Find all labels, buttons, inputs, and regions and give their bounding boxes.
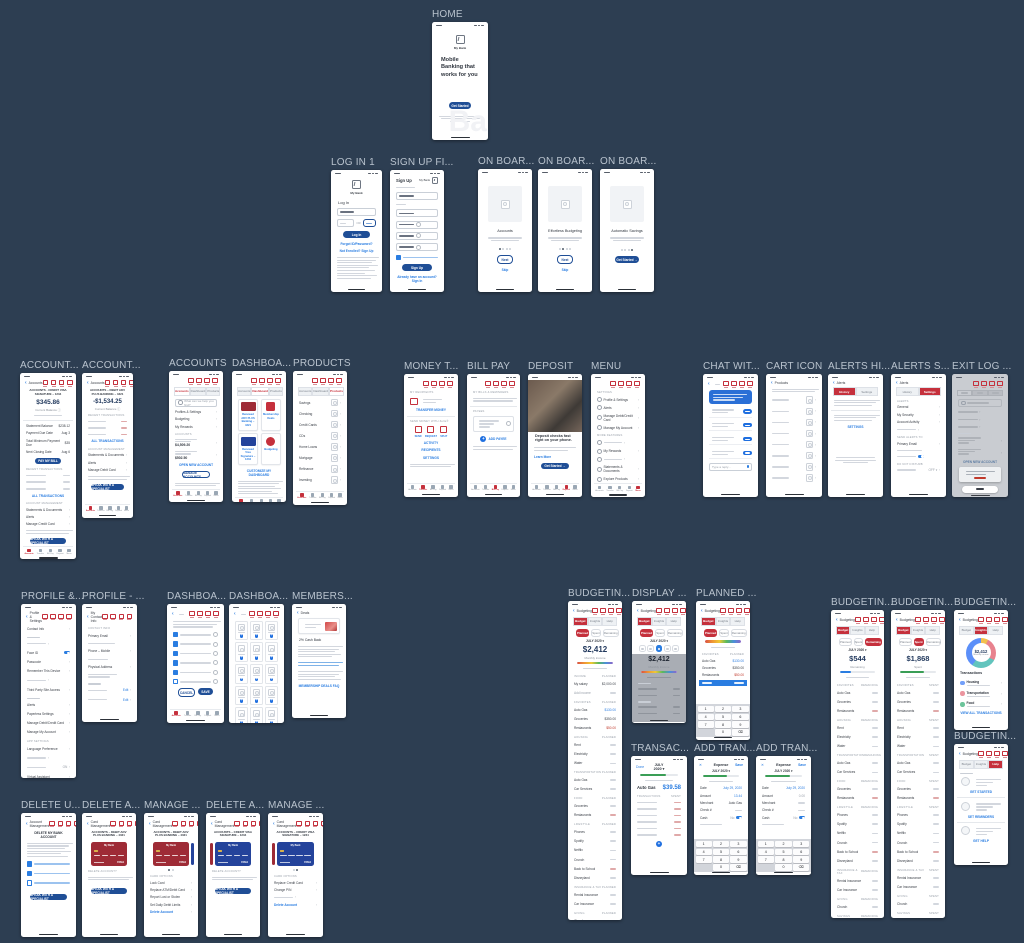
alerts-icon[interactable] [994,751,1000,758]
log-out-icon[interactable] [939,617,945,624]
budget-row[interactable]: Restaurants [574,813,616,817]
frame-budgeting-insights[interactable]: BUDGETIN...‹BudgetingBudgetInsightsHelp$… [954,610,1008,730]
input-field[interactable] [396,243,438,251]
nav-accounts[interactable]: Accounts [236,499,245,502]
alerts-icon[interactable] [204,378,210,385]
pill[interactable]: Remaining [667,629,683,638]
back-nav[interactable]: ‹Budgeting [836,618,855,622]
key-1[interactable]: 1 [698,706,714,713]
frame-label[interactable]: DELETE U... [21,800,80,811]
frame-onboarding-3[interactable]: ON BOAR...Automatic SavingsGet Started → [600,169,654,292]
list-row[interactable]: Alerts› [26,515,70,519]
dot[interactable] [562,248,564,250]
input-field[interactable] [337,219,354,227]
frame-manage-card-debit[interactable]: MANAGE ...‹Card ManagementACCOUNTS – DEB… [144,813,198,937]
tab[interactable]: Accounts [298,387,312,396]
tab[interactable]: Settings [856,387,879,396]
key-backspace[interactable]: ⌫ [732,729,748,736]
link[interactable]: GET STARTED [960,790,1002,794]
back-icon[interactable]: ‹ [959,752,961,756]
nav-menu[interactable]: Menu [449,485,454,491]
frame-label[interactable]: DELETE A... [206,800,264,811]
list-row[interactable]: Manage Credit Card› [26,522,70,526]
cart-icon[interactable] [431,381,437,388]
list-row[interactable]: Remember This Device› [27,669,70,673]
frame-label[interactable]: DELETE A... [82,800,140,811]
list-row[interactable]: › [27,642,70,646]
budget-row[interactable]: Back to School [574,867,616,871]
card-blue-tile[interactable]: Renewed Visa Signature – 1234 [238,433,258,465]
cart-icon[interactable] [50,614,56,621]
list-row[interactable]: General› [897,405,940,409]
list-row[interactable]: Edit› [88,688,131,692]
budget-row[interactable]: Auto Gas [574,778,616,782]
tab[interactable]: Products [269,387,283,396]
cart-icon[interactable] [58,821,64,828]
alerts-icon[interactable] [313,821,319,828]
frame-label[interactable]: ADD TRAN... [756,743,817,754]
list-row[interactable]: Manage Debit Card› [88,468,127,472]
budget-row[interactable]: Netflix [574,848,616,852]
log-out-icon[interactable] [747,381,753,388]
budget-row[interactable]: Restaurants$50.00 [574,726,616,730]
key-6[interactable]: 6 [730,849,746,856]
piggy-tile[interactable]: Budgeting [261,433,282,465]
tab[interactable]: Budget [701,617,716,626]
log-out-icon[interactable] [67,380,73,387]
left-action[interactable]: Done [636,765,651,769]
link[interactable]: SETTINGS [410,456,452,460]
alerts-icon[interactable] [58,614,64,621]
checkbox[interactable] [173,632,178,637]
cart-icon[interactable] [196,378,202,385]
pill[interactable]: Remaining [603,629,619,638]
back-nav[interactable]: ‹Card Management [211,820,234,828]
widget-tile[interactable]: + [250,686,263,706]
cart-icon[interactable] [923,617,929,624]
frame-onboarding-2[interactable]: ON BOAR...Effortless BudgetingNextSkip [538,169,592,292]
add-widget-button[interactable]: + [270,721,274,723]
bank-card[interactable]: My BankVISA [277,842,314,866]
log-out-icon[interactable] [616,608,622,615]
chat-icon[interactable] [43,380,49,387]
log-out-icon[interactable] [321,821,323,828]
frame-budgeting-help[interactable]: BUDGETIN...‹BudgetingBudgetInsightsHelpG… [954,744,1008,865]
back-nav[interactable]: ‹Alerts [896,381,941,385]
add-widget-button[interactable]: + [240,634,244,638]
back-nav[interactable]: ‹Account Management [26,820,49,828]
key-8[interactable]: 8 [775,856,792,863]
log-out-icon[interactable] [879,617,884,624]
frame-products[interactable]: PRODUCTSAccountsDashboardProductsSavings… [293,371,347,505]
alerts-icon[interactable] [501,381,507,388]
log-out-icon[interactable] [127,614,133,621]
product-row[interactable]: Credit Cards› [299,421,341,429]
tab[interactable]: Accounts [237,387,251,396]
frame-label[interactable]: MANAGE ... [268,800,324,811]
request-action[interactable]: REQUEST [425,426,437,437]
key-7[interactable]: 7 [696,856,712,863]
checkbox[interactable] [173,679,178,684]
key-5[interactable]: 5 [713,849,729,856]
tab[interactable]: Insights [652,617,667,626]
list-row[interactable]: Alerts› [88,461,127,465]
nav-transfer[interactable]: Transfer [37,549,44,555]
add-widget-button[interactable]: + [255,699,259,703]
day-pill[interactable] [639,645,646,652]
insight-row[interactable]: Transportation› [960,691,1002,697]
checkbox[interactable] [173,651,178,656]
budget-row[interactable]: Back to School [837,850,878,854]
budget-row[interactable]: Crunch [837,841,878,845]
button[interactable]: Get Started → [541,463,569,470]
list-row[interactable]: Paperless Settings› [27,712,70,716]
frame-alerts-history[interactable]: ALERTS HI...‹AlertsHistorySettingsSETTIN… [828,374,883,497]
button[interactable]: SPEAK WITH A SPECIALIST [215,888,251,895]
frame-chat[interactable]: CHAT WIT...‹Type a reply... [703,374,758,497]
tab[interactable]: Help [865,626,879,635]
budget-row[interactable]: Rental Insurance [897,876,939,880]
budget-row[interactable]: Water [837,744,878,748]
link[interactable]: TRANSFER MONEY [410,408,452,412]
list-row[interactable]: Report Lost or Stolen› [150,895,192,899]
back-icon[interactable]: ‹ [771,381,773,385]
frame-label[interactable]: MENU [591,361,621,372]
checkbox-row[interactable] [173,670,218,675]
product-row[interactable]: › [772,474,816,482]
nav-deposit[interactable]: Deposit [204,491,211,497]
frame-bill-pay[interactable]: BILL PAYMY BILLS & REMINDERSPAYEES+ADD P… [467,374,520,497]
input-field[interactable] [396,232,438,240]
budget-row[interactable]: Car Insurance [574,902,616,906]
back-icon[interactable]: ‹ [708,382,710,386]
frame-sign-up[interactable]: SIGN UP FI...Sign UpMy BankSign UpAlread… [390,170,444,292]
frame-delete-user[interactable]: DELETE U...‹Account ManagementDELETE MY … [21,813,76,937]
nav-accounts[interactable]: Accounts [408,485,416,491]
tab[interactable]: Settings [919,387,942,396]
back-icon[interactable]: ‹ [637,609,639,613]
list-row[interactable]: Lock Card› [150,881,192,885]
tab[interactable]: Help [988,760,1003,769]
back-icon[interactable]: ‹ [959,618,961,622]
back-nav[interactable]: ‹Budgeting [573,609,592,613]
frame-label[interactable]: PROFILE - ... [82,591,145,602]
day-pill[interactable] [664,645,671,652]
product-row[interactable]: CDs› [299,432,341,440]
product-row[interactable]: Refinance› [299,465,341,473]
frame-manage-card-credit[interactable]: MANAGE ...‹Card ManagementACCOUNTS – CRE… [268,813,323,937]
tab[interactable]: Products [206,387,220,396]
back-nav[interactable]: ‹Profile & Settings [26,611,42,623]
product-row[interactable]: › [772,408,816,416]
cart-icon[interactable] [618,381,624,388]
checkbox-row[interactable] [173,641,218,646]
back-icon[interactable]: ‹ [172,612,174,616]
link[interactable]: MEMBERSHIP DEALS FAQ [298,684,340,688]
send-action[interactable]: SEND [415,426,422,437]
alerts-icon[interactable] [251,821,257,828]
add-widget-button[interactable]: + [270,656,274,660]
log-out-icon[interactable] [1002,751,1008,758]
budget-row[interactable]: Groceries [837,787,878,791]
list-row[interactable]: Statements & Documents› [88,453,127,457]
alerts-icon[interactable] [736,608,742,615]
log-out-icon[interactable] [336,378,342,385]
cart-icon[interactable] [110,614,116,621]
back-icon[interactable]: ‹ [573,609,575,613]
design-canvas[interactable]: HOMEBaMy BankMobile Banking that works f… [0,0,1024,943]
nav-bill-pay[interactable]: Bill Pay [258,499,265,502]
bank-card[interactable]: My BankVISA [91,842,127,866]
left-action[interactable]: ✕ [699,763,714,767]
frame-add-transaction-1[interactable]: ADD TRAN...✕ExpenseSaveJULY 2020 ▾DateJu… [694,756,748,875]
frame-label[interactable]: DISPLAY ... [632,588,687,599]
alerts-icon[interactable] [121,380,127,387]
chat-icon[interactable] [855,617,861,624]
list-row[interactable]: Set Daily Debit Limits› [150,903,192,907]
add-widget-button[interactable]: + [270,634,274,638]
link[interactable]: Not Enrolled? Sign Up [337,249,376,253]
cart-icon[interactable] [728,608,734,615]
chat-icon[interactable] [978,751,984,758]
list-row[interactable]: Face ID [27,651,70,655]
dot[interactable] [559,248,561,250]
tab[interactable]: Accounts [174,387,190,396]
tab[interactable]: Insights [974,760,989,769]
tab[interactable]: Help [602,617,617,626]
frame-transactions[interactable]: TRANSAC...DoneJULY 2020 ▾Auto Gas$39.58T… [631,756,687,875]
nav-bill-pay[interactable]: Bill Pay [430,485,437,491]
chat-icon[interactable] [49,821,55,828]
widget-tile[interactable]: + [250,707,263,723]
list-row[interactable]: Manage My Account› [597,425,639,430]
frame-alerts-settings[interactable]: ALERTS S...‹AlertsHistorySettingsALERTSG… [891,374,946,497]
product-row[interactable]: Investing› [299,476,341,484]
budget-row[interactable]: Rent [574,743,616,747]
frame-home[interactable]: HOMEBaMy BankMobile Banking that works f… [432,22,488,140]
budget-row[interactable]: Car Services [897,770,939,774]
key-2[interactable]: 2 [715,706,731,713]
budget-row[interactable]: Church [897,902,939,906]
key-6[interactable]: 6 [793,849,810,856]
dot[interactable] [502,248,504,250]
frame-label[interactable]: BILL PAY [467,361,510,372]
pill[interactable]: Planned [576,629,589,638]
frame-label[interactable]: ALERTS HI... [828,361,890,372]
nav-deposit[interactable]: Deposit [439,485,446,491]
key-9[interactable]: 9 [732,721,748,728]
tab[interactable]: Dashboard [312,387,329,396]
tab[interactable]: History [833,387,856,396]
frame-label[interactable]: HOME [432,9,463,20]
frame-label[interactable]: TRANSAC... [631,743,689,754]
nav-bill-pay[interactable]: Bill Pay [492,485,499,491]
product-row[interactable]: Checking› [299,410,341,418]
toggle[interactable] [64,651,70,654]
budget-row[interactable]: Auto Gas [897,761,939,765]
back-nav[interactable]: ‹Budgeting [896,618,915,622]
frame-label[interactable]: ON BOAR... [600,156,656,167]
back-nav[interactable]: ‹ [172,612,189,617]
button[interactable]: MANAGE ACCOUNTS [182,471,210,479]
frame-label[interactable]: ACCOUNT... [20,360,79,371]
list-row[interactable]: Manage Debit/Credit Card› [597,414,639,422]
add-action[interactable]: + [634,841,684,847]
key-2[interactable]: 2 [713,841,729,848]
product-row[interactable]: › [772,430,816,438]
nav-bill-pay[interactable]: Bill Pay [319,493,326,499]
chat-icon[interactable] [172,821,178,828]
budget-row[interactable]: Phones [837,813,878,817]
nav-deposit[interactable]: Deposit [115,506,122,512]
budget-row[interactable]: Water [897,744,939,748]
alerts-icon[interactable] [608,608,614,615]
tab[interactable] [972,390,987,396]
list-row[interactable]: Language Preference› [27,747,70,751]
key-9[interactable]: 9 [793,856,810,863]
account-item[interactable]: $502.50› [175,451,217,460]
chat-icon[interactable] [720,608,726,615]
alerts-icon[interactable] [66,821,72,828]
alerts-icon[interactable] [267,378,273,385]
tab[interactable]: Help [730,617,745,626]
day-pill[interactable] [656,645,663,652]
nav-deposit[interactable]: Deposit [501,485,508,491]
log-out-icon[interactable] [66,614,72,621]
tab[interactable]: Help [666,617,681,626]
frame-profile-contact[interactable]: PROFILE - ...‹My Contact InfoCONTACT INF… [82,604,137,722]
cart-icon[interactable] [119,821,125,828]
chat-icon[interactable] [296,821,302,828]
frame-accounts[interactable]: ACCOUNTSAccountsDashboardProductsWhat ca… [169,371,223,502]
alerts-icon[interactable] [931,617,937,624]
tab[interactable]: Dashboard [190,387,207,396]
cart-icon[interactable] [259,378,265,385]
list-row[interactable]: Account Activity› [897,420,940,424]
budget-row[interactable]: Rental Insurance [837,879,878,883]
nav-transfer[interactable]: Transfer [482,485,489,491]
key-1[interactable]: 1 [758,841,775,848]
insight-row[interactable]: Food› [960,701,1002,707]
log-out-icon[interactable] [273,611,279,618]
frame-budgeting-remaining[interactable]: BUDGETIN...‹BudgetingBudgetInsightsHelpP… [831,610,884,918]
nav-deposit[interactable]: Deposit [563,485,570,491]
nav-transfer[interactable]: Transfer [248,499,255,502]
button[interactable]: Sign Up [402,264,432,271]
nav-accounts[interactable]: Accounts [297,493,306,499]
list-row[interactable]: Contact Info› [27,627,70,631]
list-row[interactable]: Delete Account› [150,910,192,914]
checkbox-row[interactable] [173,632,218,637]
alerts-icon[interactable] [205,611,211,618]
nav-bill-pay[interactable]: Bill Pay [195,491,202,497]
key-6[interactable]: 6 [732,714,748,721]
checkbox-row[interactable] [173,651,218,656]
list-row[interactable]: Edit› [88,698,131,702]
budget-row[interactable]: Groceries [837,700,878,704]
log-out-icon[interactable] [74,821,76,828]
budget-row[interactable]: Add income [574,691,616,695]
budget-row[interactable]: Church [574,919,616,920]
tab[interactable]: Insights [850,626,864,635]
log-out-icon[interactable] [259,821,260,828]
list-row[interactable]: › [958,425,1002,429]
back-icon[interactable]: ‹ [26,822,28,826]
frame-onboarding-1[interactable]: ON BOAR...AccountsNextSkip [478,169,532,292]
budget-row[interactable]: Car Insurance [837,888,878,892]
checkbox-row[interactable] [27,861,70,866]
pill[interactable]: Remaining [731,629,747,638]
back-icon[interactable]: ‹ [26,615,28,619]
link[interactable]: GET HELP [960,839,1002,843]
frame-label[interactable]: ALERTS S... [891,361,950,372]
list-row[interactable]: Replace Credit Card› [274,881,317,885]
back-icon[interactable]: ‹ [87,822,89,826]
frame-planned-edit[interactable]: PLANNED ...‹BudgetingBudgetInsightsHelpP… [696,601,750,740]
pill[interactable]: Spent [854,638,864,647]
budget-row[interactable]: Netflix [897,831,939,835]
dot[interactable] [172,869,174,871]
chat-icon[interactable] [610,381,616,388]
deals-tile[interactable]: Membership Deals [261,399,282,431]
product-row[interactable]: Savings› [299,399,341,407]
back-icon[interactable]: ‹ [273,822,275,826]
plus-icon[interactable]: + [480,436,486,442]
confirm-logout-button[interactable] [974,477,985,479]
deal-card[interactable] [298,618,340,634]
plus-icon[interactable]: + [656,841,662,847]
back-nav[interactable]: ‹Products [771,381,817,385]
widget-tile[interactable]: + [235,707,248,723]
key-7[interactable]: 7 [758,856,775,863]
list-row[interactable]: › [958,418,1002,422]
checkbox[interactable] [173,660,178,665]
budget-row[interactable]: Back to School [897,850,939,854]
input-field[interactable]: Type a reply... [709,463,752,471]
input-field[interactable]: What can we help you find? [175,399,217,407]
budget-row[interactable]: Restaurants [837,796,878,800]
tab[interactable]: Budget [959,626,974,635]
day-pill[interactable] [647,645,654,652]
key-0[interactable]: 0 [713,864,729,871]
list-row[interactable]: Manage My Account› [27,730,70,734]
button[interactable]: Log In [343,231,370,238]
list-row[interactable]: Third Party Site Access› [27,688,70,692]
pill[interactable]: Spent [719,629,729,638]
list-row[interactable]: Alerts› [597,405,639,410]
nav-menu[interactable]: Menu [511,485,516,491]
link[interactable]: Skip [544,268,586,272]
button[interactable]: Get Started → [615,256,639,263]
account-item[interactable]: $4,509.20› [175,439,217,448]
frame-exit-logout[interactable]: EXIT LOG ...›››››OPEN NEW ACCOUNT [952,374,1008,497]
checkbox[interactable] [173,670,178,675]
frame-profile-settings[interactable]: PROFILE &...‹Profile & SettingsContact I… [21,604,76,778]
tab[interactable]: Dashboard [251,387,269,396]
list-row[interactable]: My Rewards› [175,425,217,429]
add-widget-button[interactable]: + [240,721,244,723]
toggle[interactable] [799,816,805,819]
cart-icon[interactable] [305,821,311,828]
list-row[interactable]: Primary Email› [88,634,131,638]
list-row[interactable]: › [897,428,940,432]
chat-action-button[interactable] [743,437,752,442]
log-out-icon[interactable] [129,380,133,387]
add-widget-button[interactable]: + [270,678,274,682]
list-row[interactable]: › [274,895,317,899]
product-row[interactable]: › [772,419,816,427]
link[interactable]: ACTIVITY [410,441,452,445]
